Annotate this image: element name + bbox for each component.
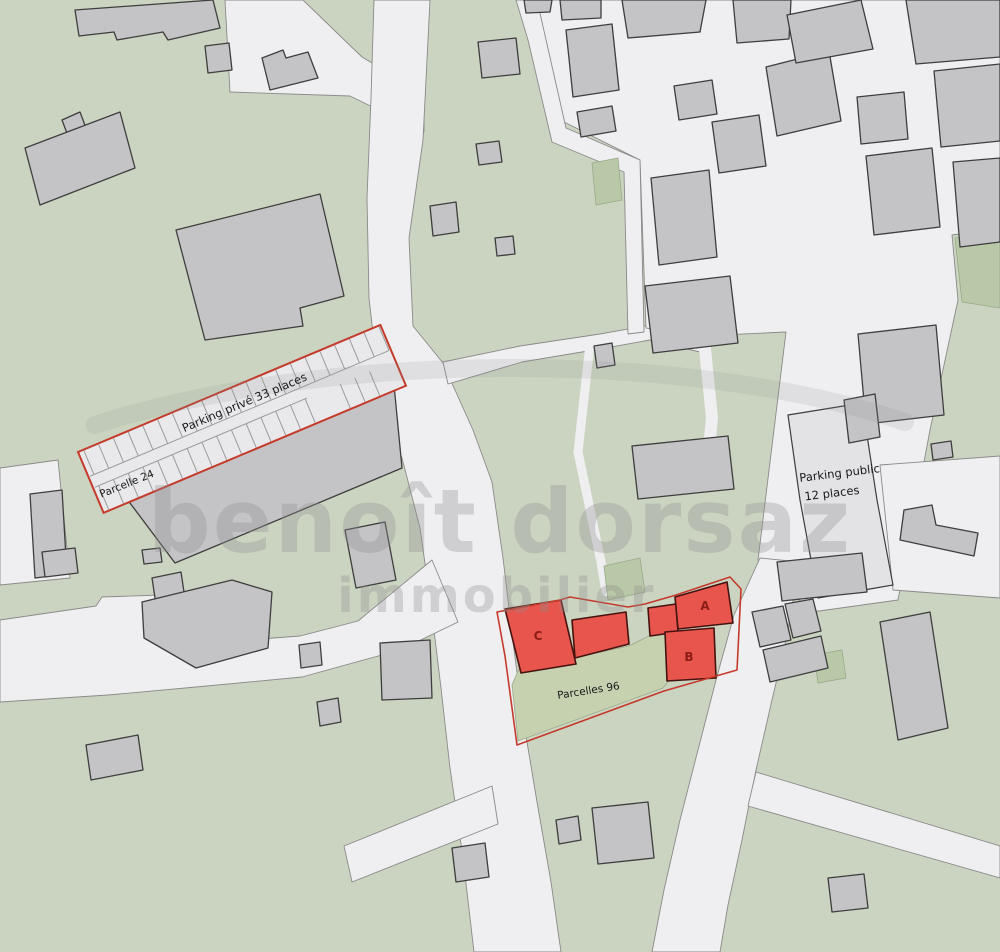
building bbox=[380, 640, 432, 700]
label-building-c: C bbox=[534, 629, 543, 643]
watermark-subtitle: immobilier bbox=[337, 568, 656, 624]
building bbox=[712, 115, 766, 173]
green-patch bbox=[592, 158, 622, 205]
building bbox=[205, 43, 232, 73]
building bbox=[733, 0, 791, 43]
building bbox=[566, 24, 619, 97]
site-plan: benoît dorsaz immobilier Parking privé 3… bbox=[0, 0, 1000, 952]
building bbox=[953, 158, 1000, 247]
watermark-brand: benoît dorsaz bbox=[148, 470, 852, 573]
building bbox=[934, 64, 1000, 147]
building bbox=[645, 276, 738, 353]
building bbox=[476, 141, 502, 165]
building bbox=[452, 843, 489, 882]
building bbox=[592, 802, 654, 864]
building bbox=[931, 441, 953, 460]
building bbox=[674, 80, 717, 120]
building bbox=[560, 0, 601, 20]
label-building-a: A bbox=[700, 599, 710, 613]
building bbox=[317, 698, 341, 726]
building bbox=[556, 816, 581, 844]
building bbox=[577, 106, 616, 137]
building bbox=[766, 51, 841, 136]
building bbox=[622, 0, 706, 38]
building bbox=[430, 202, 459, 236]
building bbox=[495, 236, 515, 256]
building bbox=[866, 148, 940, 235]
building bbox=[299, 642, 322, 668]
building bbox=[524, 0, 552, 13]
building bbox=[906, 0, 1000, 64]
building bbox=[651, 170, 717, 265]
building bbox=[42, 548, 78, 577]
label-building-b: B bbox=[684, 650, 693, 664]
building bbox=[828, 874, 868, 912]
building bbox=[857, 92, 908, 144]
map-canvas: benoît dorsaz immobilier Parking privé 3… bbox=[0, 0, 1000, 952]
building bbox=[478, 38, 520, 78]
